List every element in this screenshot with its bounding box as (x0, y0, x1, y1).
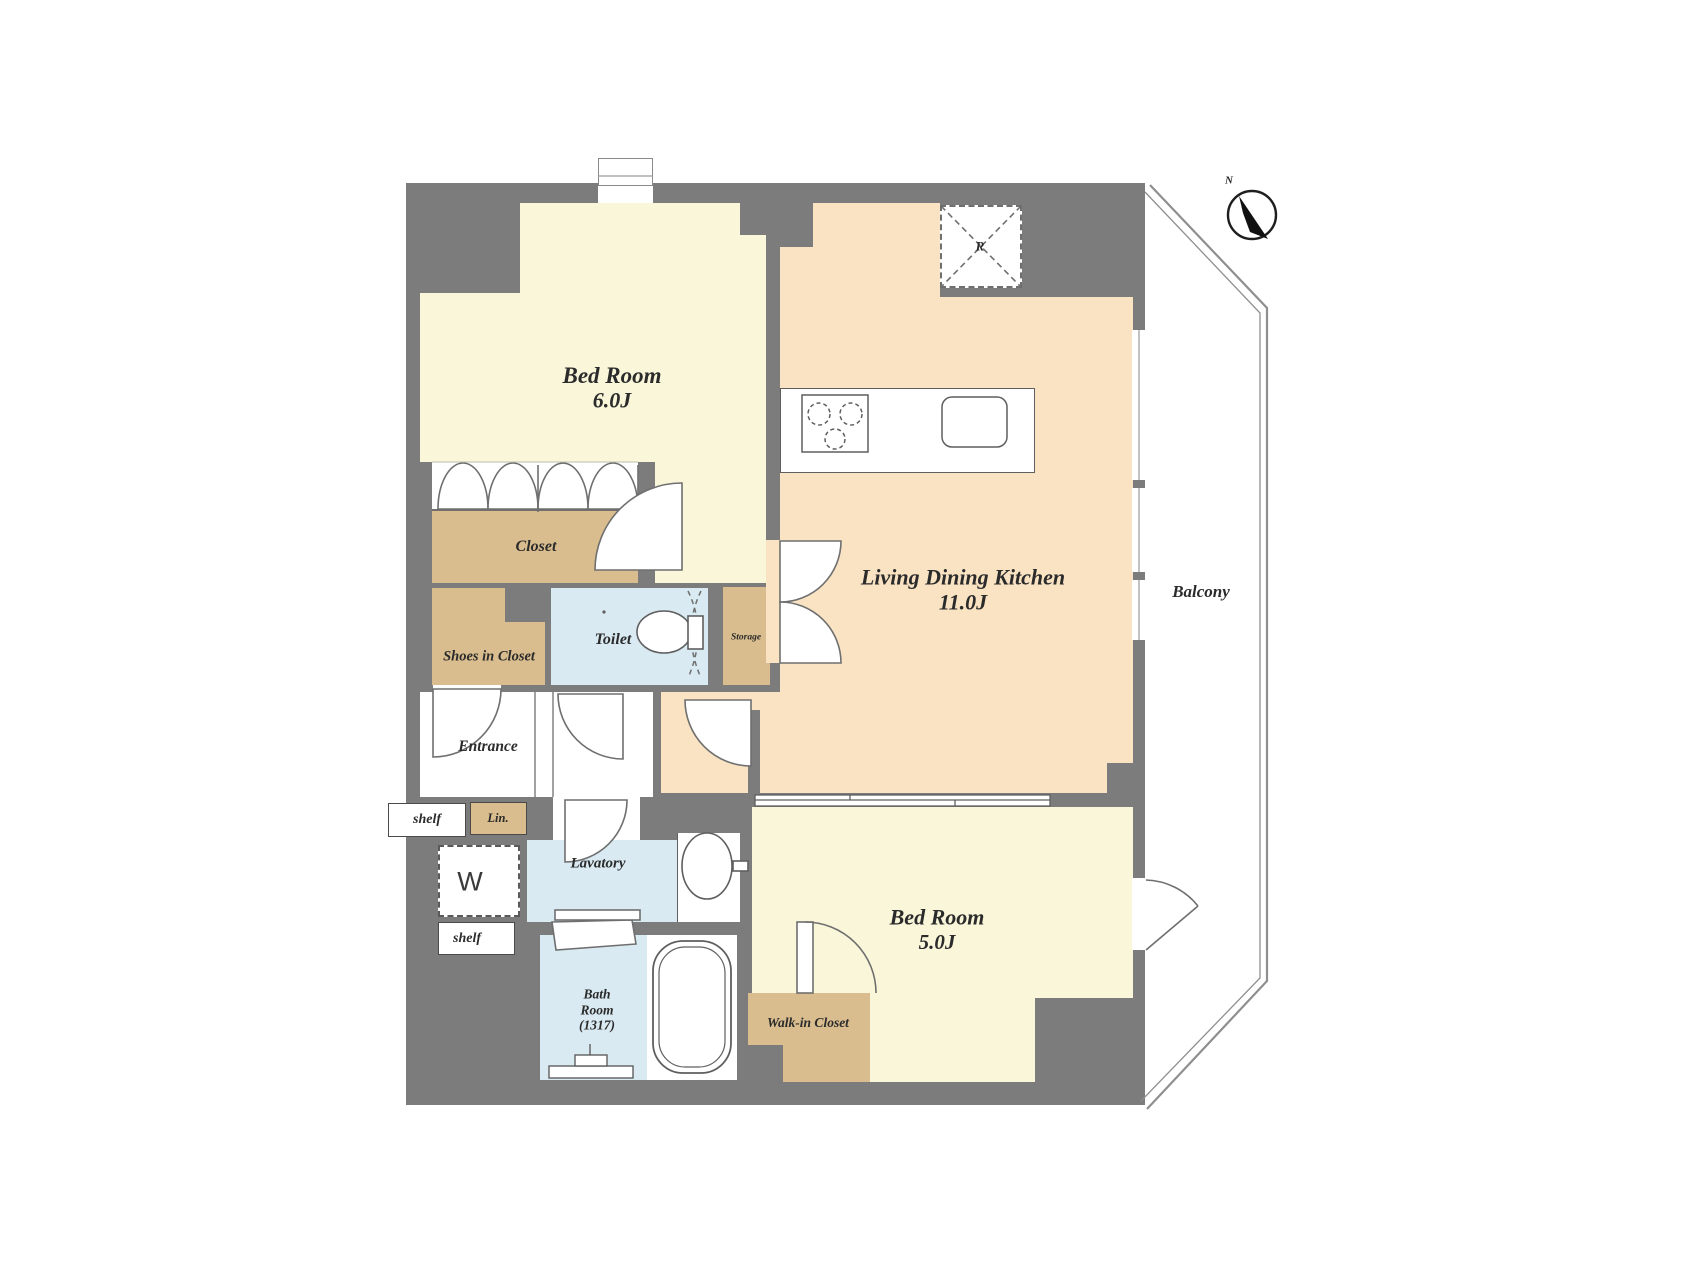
walk-in-closet-label: Walk-in Closet (767, 1015, 849, 1031)
window-tab (598, 158, 653, 186)
bathroom-label-line2: Room (580, 1002, 613, 1017)
wall-notch (1035, 998, 1133, 1082)
ldk-floor (813, 203, 940, 297)
shoes-in-closet-label: Shoes in Closet (443, 649, 535, 666)
entry-door-gap (433, 685, 501, 692)
ldk-floor (661, 692, 780, 793)
wall-notch (1107, 763, 1133, 793)
entrance-floor (420, 692, 653, 797)
entrance-label: Entrance (458, 738, 517, 756)
balcony-door-gap (1132, 878, 1146, 950)
bedroom-main-floor (655, 462, 766, 583)
lavatory-label: Lavatory (571, 855, 626, 872)
ldk-door-opening (766, 540, 780, 663)
window (1132, 580, 1146, 640)
balcony-railing (1141, 185, 1267, 1109)
washer-label: W (457, 866, 482, 897)
floor-plan-canvas: Bed Room 6.0J Living Dining Kitchen 11.0… (0, 0, 1699, 1272)
wash-basin-area (677, 833, 740, 922)
wall-segment (748, 710, 760, 797)
ldk-floor (780, 247, 813, 297)
linen-cabinet-label: Lin. (487, 811, 508, 825)
bathroom-label-line3: (1317) (579, 1018, 615, 1033)
balcony-label: Balcony (1172, 582, 1230, 602)
window (1132, 330, 1146, 480)
bedroom-main-floor (740, 235, 766, 293)
bedroom-second-area: 5.0J (919, 930, 956, 954)
bathtub-area (647, 935, 737, 1080)
north-arrow-icon (1228, 191, 1276, 239)
ldk-floor (780, 297, 1133, 793)
range-hood-label: R (976, 240, 985, 255)
storage-label: Storage (731, 633, 761, 644)
bedroom-main-floor (520, 203, 740, 293)
toilet-label: Toilet (595, 631, 632, 649)
bedroom-main-label: Bed Room (562, 363, 661, 389)
compass-north-label: N (1225, 175, 1233, 188)
window (1132, 488, 1146, 572)
bathroom-label-line1: Bath (583, 987, 610, 1002)
ldk-area: 11.0J (939, 589, 987, 614)
shoes-in-closet-floor (432, 588, 505, 685)
ldk-label: Living Dining Kitchen (861, 564, 1065, 589)
bathroom-label: Bath Room (1317) (579, 987, 615, 1034)
kitchen-counter (780, 388, 1035, 473)
closet-label: Closet (516, 538, 557, 556)
wall-notch (748, 1045, 783, 1082)
shelf-entrance-label: shelf (413, 812, 441, 828)
bedroom-main-area: 6.0J (593, 387, 632, 412)
window (598, 183, 653, 203)
bedroom-second-label: Bed Room (890, 904, 985, 929)
closet-door-band (432, 462, 638, 509)
shelf-lower-label: shelf (453, 931, 481, 947)
passage-floor (553, 797, 640, 840)
lavatory-floor (527, 840, 677, 922)
